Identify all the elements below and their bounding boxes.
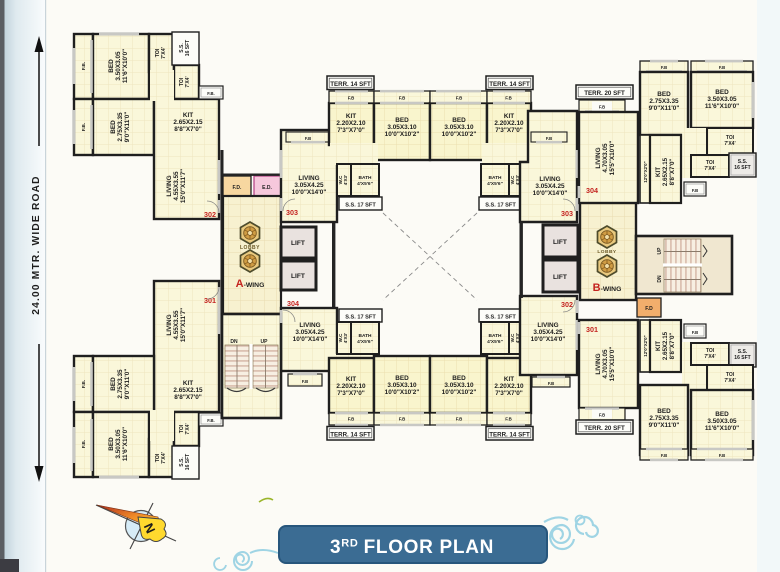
svg-text:TOI7'X4': TOI7'X4' <box>704 160 715 172</box>
svg-text:S.S. 17 SFT: S.S. 17 SFT <box>345 315 376 321</box>
svg-text:TERR. 20 SFT: TERR. 20 SFT <box>584 90 625 97</box>
svg-text:F.B: F.B <box>456 417 463 422</box>
svg-text:F.B: F.B <box>348 417 355 422</box>
svg-text:F.B: F.B <box>692 188 698 193</box>
svg-text:TOI7'X4': TOI7'X4' <box>155 47 167 59</box>
svg-text:LOBBY: LOBBY <box>240 245 260 251</box>
svg-text:TERR. 14 SFT: TERR. 14 SFT <box>489 432 530 439</box>
svg-text:TERR. 14 SFT: TERR. 14 SFT <box>489 81 530 88</box>
svg-text:TOI7'X4': TOI7'X4' <box>179 76 191 87</box>
svg-text:DN: DN <box>657 275 663 283</box>
svg-text:E.D.: E.D. <box>262 185 272 191</box>
svg-text:F.B: F.B <box>505 417 512 422</box>
svg-text:301: 301 <box>586 325 598 334</box>
svg-text:S.S. 17 SFT: S.S. 17 SFT <box>345 203 376 209</box>
svg-text:TERR. 20 SFT: TERR. 20 SFT <box>584 425 625 432</box>
svg-text:304: 304 <box>287 299 299 308</box>
svg-text:303: 303 <box>286 208 298 217</box>
svg-text:S.S. 17 SFT: S.S. 17 SFT <box>485 203 516 209</box>
svg-text:F.B: F.B <box>599 413 605 418</box>
svg-text:F.B.: F.B. <box>81 62 86 70</box>
svg-text:TERR. 14 SFT: TERR. 14 SFT <box>330 81 371 88</box>
svg-text:LIFT: LIFT <box>291 273 305 280</box>
svg-text:F.B: F.B <box>599 105 605 110</box>
svg-text:LIFT: LIFT <box>553 239 567 246</box>
svg-text:F.B: F.B <box>305 136 311 141</box>
svg-text:TOI7'X4': TOI7'X4' <box>704 348 715 360</box>
svg-text:TERR. 14 SFT: TERR. 14 SFT <box>330 432 371 439</box>
svg-text:F.B: F.B <box>692 330 698 335</box>
svg-text:TOI7'X4': TOI7'X4' <box>179 423 191 434</box>
svg-text:F.D: F.D <box>645 306 653 312</box>
svg-text:S.S. 17 SFT: S.S. 17 SFT <box>485 315 516 321</box>
svg-text:F.B: F.B <box>399 417 406 422</box>
svg-text:DN: DN <box>230 339 238 345</box>
svg-text:303: 303 <box>561 209 573 218</box>
svg-text:24.00 MTR. WIDE ROAD: 24.00 MTR. WIDE ROAD <box>31 175 42 314</box>
svg-text:302: 302 <box>204 210 216 219</box>
svg-text:TOI7'X4': TOI7'X4' <box>724 135 735 147</box>
svg-text:302: 302 <box>561 300 573 309</box>
svg-text:W.C4'X3': W.C4'X3' <box>338 333 348 343</box>
svg-text:LIFT: LIFT <box>291 240 305 247</box>
svg-text:W.C4'X3': W.C4'X3' <box>510 333 520 343</box>
svg-text:F.B.: F.B. <box>207 418 214 423</box>
svg-text:F.B.: F.B. <box>81 380 86 388</box>
svg-text:F.B.: F.B. <box>81 440 86 448</box>
svg-text:301: 301 <box>204 296 216 305</box>
svg-text:F.B: F.B <box>348 96 355 101</box>
svg-text:UP: UP <box>657 247 663 255</box>
svg-text:LIFT: LIFT <box>553 274 567 281</box>
svg-text:W.C4'X3': W.C4'X3' <box>510 175 520 185</box>
svg-text:F.B: F.B <box>548 381 554 386</box>
svg-text:F.B: F.B <box>719 65 725 70</box>
svg-text:F.B: F.B <box>719 453 725 458</box>
svg-text:F.B: F.B <box>661 65 667 70</box>
svg-text:12'0"X2'0": 12'0"X2'0" <box>643 335 648 356</box>
svg-text:12'0"X2'0": 12'0"X2'0" <box>643 161 648 182</box>
svg-text:LOBBY: LOBBY <box>597 249 617 255</box>
svg-text:304: 304 <box>586 186 598 195</box>
svg-text:F.B.: F.B. <box>81 123 86 131</box>
svg-text:TOI7'X4': TOI7'X4' <box>724 372 735 384</box>
svg-text:F.D.: F.D. <box>233 185 243 191</box>
svg-text:F.B: F.B <box>456 96 463 101</box>
svg-text:TOI7'X4': TOI7'X4' <box>155 452 167 464</box>
svg-text:W.C4'X3': W.C4'X3' <box>338 175 348 185</box>
svg-text:F.B: F.B <box>505 96 512 101</box>
svg-text:F.B.: F.B. <box>207 91 214 96</box>
svg-text:F.B: F.B <box>399 96 406 101</box>
svg-text:UP: UP <box>261 339 269 345</box>
svg-text:F.B: F.B <box>661 453 667 458</box>
svg-text:F.B: F.B <box>302 379 308 384</box>
svg-text:F.B: F.B <box>546 136 552 141</box>
